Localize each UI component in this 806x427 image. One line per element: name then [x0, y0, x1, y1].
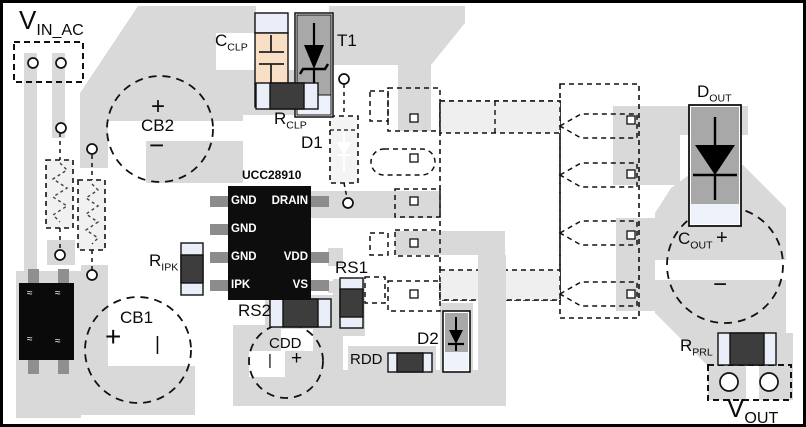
ic-pin-gnd3 — [210, 252, 228, 263]
cb1-minus: | — [155, 334, 160, 356]
ic-pin-gnd1 — [210, 196, 228, 207]
cb1-label: CB1 — [120, 308, 153, 328]
pin-label-vs: VS — [248, 279, 308, 291]
transformer-winding-bottom — [440, 270, 560, 300]
pad-inductor-top — [81, 138, 105, 160]
pour-dout-anode-arm — [680, 106, 748, 135]
pad-rs1 — [333, 279, 365, 336]
inductor-footprint — [78, 180, 105, 250]
vout-label: VOUT — [727, 393, 778, 427]
pad-fuse-bottom — [47, 240, 75, 265]
pour-bottom-band-left — [81, 366, 195, 415]
transformer-footprint — [440, 84, 639, 318]
pour-secondary-top — [613, 106, 680, 185]
cdd-minus: | — [268, 352, 272, 369]
pin-label-vdd: VDD — [248, 251, 308, 263]
trace-vin-left — [24, 53, 37, 283]
cout-minus: − — [713, 271, 727, 299]
ic-pin-drain — [311, 196, 329, 207]
ic-part-label: UCC28910 — [242, 168, 301, 182]
cdd-plus: + — [291, 348, 302, 370]
pin-label-drain: DRAIN — [248, 195, 308, 207]
d2-label: D2 — [417, 329, 439, 349]
transformer-winding-top — [440, 101, 560, 133]
trace-d2-vertical — [478, 255, 506, 371]
vin-label: VIN_AC — [19, 5, 84, 40]
pour-secondary-bottom-slab — [616, 218, 655, 311]
bridge-mark-3: ≈ — [27, 334, 32, 345]
pour-top-arc — [329, 6, 465, 131]
cout-label: COUT — [678, 229, 713, 251]
rs1-label: RS1 — [335, 258, 368, 278]
pad-d2 — [440, 303, 473, 378]
rprl-resistor — [718, 333, 776, 365]
pour-bottom-left — [16, 271, 81, 418]
ic-pin-vs — [311, 280, 329, 291]
cout-outline — [667, 207, 783, 323]
rclp-label: RCLP — [274, 109, 307, 131]
rprl-label: RPRL — [680, 336, 713, 358]
pour-top-strip — [216, 6, 256, 33]
cb2-minus: − — [149, 130, 164, 161]
trace-vs-arm — [395, 231, 505, 255]
trace-drain — [311, 191, 439, 218]
trace-vin-right — [52, 53, 65, 138]
pad-squares — [410, 114, 635, 298]
t1-label: T1 — [337, 31, 357, 51]
dout-label: DOUT — [697, 82, 732, 104]
cb1-plus: + — [105, 321, 121, 353]
pin-label-gnd2: GND — [231, 223, 257, 235]
cout-plus: + — [716, 227, 728, 250]
pour-right-of-bridge — [81, 265, 108, 366]
bridge-mark-2: ≈ — [55, 288, 60, 299]
pcb-layout-diagram: GND GND GND IPK DRAIN VDD VS ≈ ≈ ≈ ≈ VIN… — [0, 0, 806, 427]
fuse-footprint — [46, 160, 73, 228]
ic-pin-vdd — [311, 252, 329, 263]
rdd-label: RDD — [350, 351, 383, 368]
bridge-mark-1: ≈ — [27, 288, 32, 299]
bridge-mark-4: ≈ — [55, 336, 60, 347]
d1-label: D1 — [301, 133, 323, 153]
d1-diode — [330, 116, 358, 183]
cclp-label: CCLP — [215, 31, 248, 53]
ic-pin-ipk — [210, 280, 228, 291]
ripk-label: RIPK — [149, 251, 178, 273]
rs2-label: RS2 — [238, 301, 271, 321]
cdd-white-notch-2 — [249, 351, 285, 377]
ic-pin-gnd2 — [210, 224, 228, 235]
ripk-resistor — [181, 243, 203, 295]
